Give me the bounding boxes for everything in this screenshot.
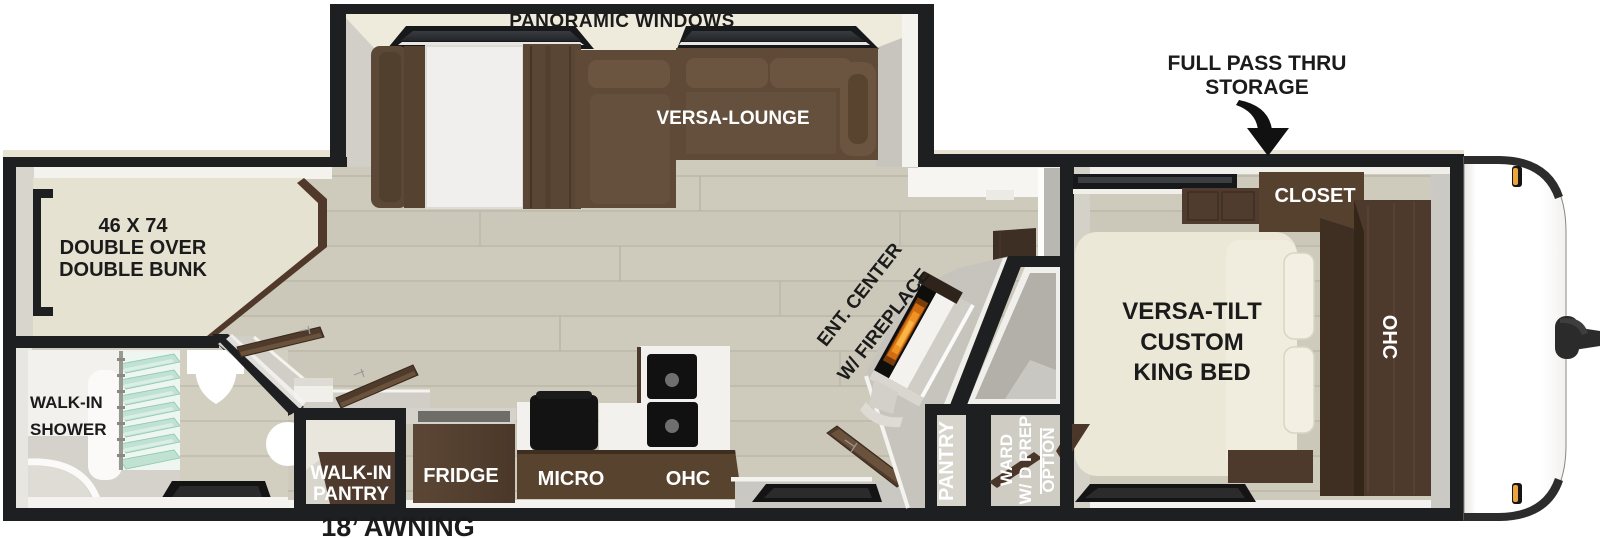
svg-text:VERSA-LOUNGE: VERSA-LOUNGE — [656, 108, 809, 129]
svg-text:WARD: WARD — [997, 434, 1016, 486]
svg-text:CUSTOM: CUSTOM — [1140, 329, 1244, 356]
svg-text:CLOSET: CLOSET — [1274, 185, 1355, 207]
svg-text:OHC: OHC — [666, 468, 710, 490]
svg-text:WALK-IN: WALK-IN — [310, 463, 391, 484]
svg-text:MICRO: MICRO — [538, 468, 605, 490]
svg-text:DOUBLE OVER: DOUBLE OVER — [60, 237, 207, 259]
svg-text:W/ D PREP: W/ D PREP — [1016, 416, 1035, 505]
svg-text:46 X 74: 46 X 74 — [99, 215, 169, 237]
svg-text:FULL PASS THRU: FULL PASS THRU — [1168, 52, 1347, 75]
svg-text:OPTION: OPTION — [1039, 427, 1058, 492]
svg-text:VERSA-TILT: VERSA-TILT — [1122, 298, 1262, 325]
svg-text:KING BED: KING BED — [1133, 359, 1250, 386]
svg-text:WALK-IN: WALK-IN — [30, 393, 103, 412]
svg-text:18’ AWNING: 18’ AWNING — [321, 512, 475, 538]
svg-text:FRIDGE: FRIDGE — [423, 465, 499, 487]
svg-text:OHC: OHC — [1378, 315, 1400, 359]
svg-text:PANORAMIC WINDOWS: PANORAMIC WINDOWS — [509, 11, 735, 32]
svg-text:PANTRY: PANTRY — [936, 420, 958, 501]
svg-text:PANTRY: PANTRY — [313, 484, 389, 505]
svg-text:STORAGE: STORAGE — [1205, 76, 1308, 99]
svg-text:SHOWER: SHOWER — [30, 420, 107, 439]
svg-text:DOUBLE BUNK: DOUBLE BUNK — [59, 259, 207, 281]
